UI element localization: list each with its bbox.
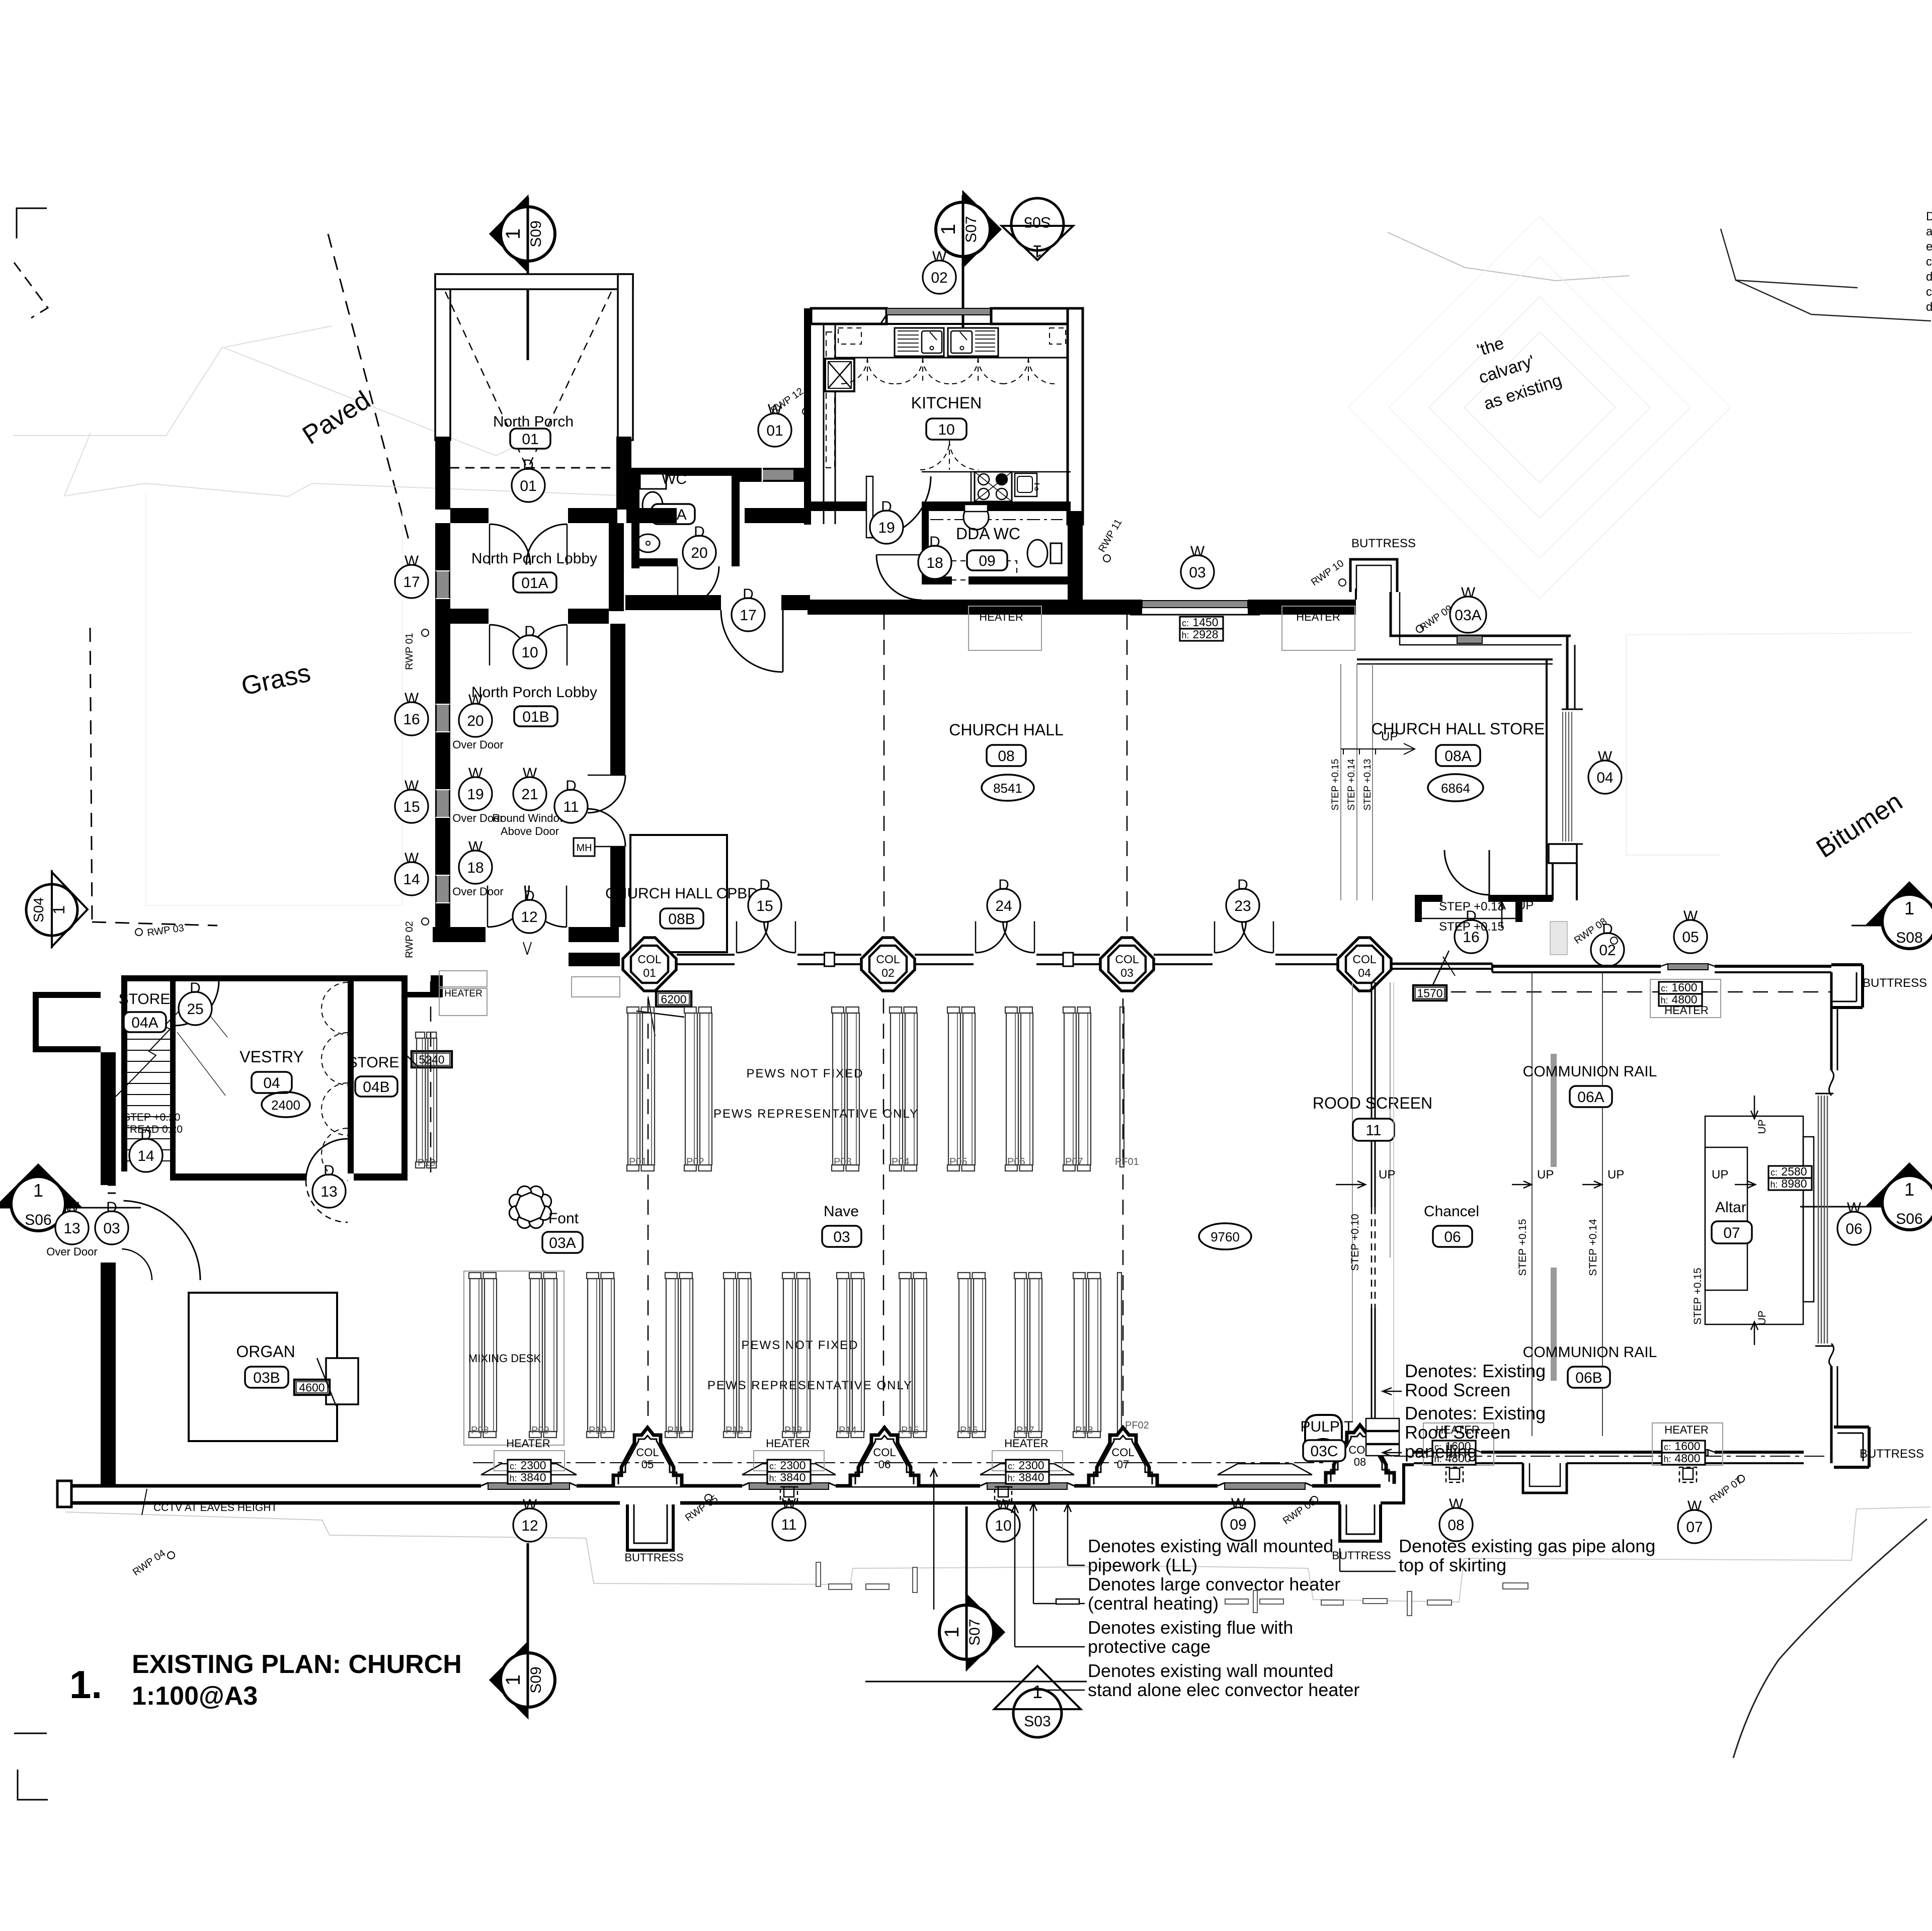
svg-text:04A: 04A xyxy=(131,1015,158,1031)
svg-text:Denotes existing flue with: Denotes existing flue with xyxy=(1088,1617,1293,1638)
svg-text:MIXING DESK: MIXING DESK xyxy=(468,1352,541,1365)
svg-text:D: D xyxy=(324,1162,335,1179)
svg-text:W: W xyxy=(468,692,483,708)
svg-text:1450: 1450 xyxy=(1192,616,1218,629)
svg-text:h:: h: xyxy=(1770,1180,1778,1190)
svg-text:W: W xyxy=(1847,1200,1862,1216)
svg-text:c:: c: xyxy=(1182,618,1189,628)
svg-text:W: W xyxy=(1687,1498,1702,1515)
svg-text:W: W xyxy=(65,1199,79,1216)
svg-text:PEWS NOT FIXED: PEWS NOT FIXED xyxy=(747,1067,864,1080)
svg-text:1: 1 xyxy=(1033,241,1042,261)
svg-text:13: 13 xyxy=(320,1184,337,1200)
svg-text:01: 01 xyxy=(643,966,656,979)
svg-text:Denotes: Existing: Denotes: Existing xyxy=(1405,1361,1546,1381)
svg-text:01B: 01B xyxy=(522,709,549,725)
svg-text:COMMUNION RAIL: COMMUNION RAIL xyxy=(1523,1063,1657,1080)
svg-text:8980: 8980 xyxy=(1781,1177,1807,1190)
svg-text:Over Door: Over Door xyxy=(452,885,503,898)
svg-text:D: D xyxy=(523,457,534,473)
svg-text:P12: P12 xyxy=(726,1425,744,1436)
svg-text:stand alone elec convector hea: stand alone elec convector heater xyxy=(1088,1680,1359,1700)
svg-text:W: W xyxy=(405,553,419,569)
svg-text:P08: P08 xyxy=(471,1425,489,1436)
svg-text:1570: 1570 xyxy=(1417,986,1442,999)
svg-text:top of skirting: top of skirting xyxy=(1399,1555,1506,1575)
svg-text:pipework (LL): pipework (LL) xyxy=(1088,1555,1197,1575)
svg-text:P16: P16 xyxy=(960,1425,978,1436)
svg-text:P18: P18 xyxy=(1075,1425,1093,1436)
svg-text:W: W xyxy=(1461,584,1476,601)
svg-text:W: W xyxy=(405,778,419,794)
svg-text:CCTV AT EAVES HEIGHT: CCTV AT EAVES HEIGHT xyxy=(153,1502,277,1514)
svg-text:06A: 06A xyxy=(1577,1089,1604,1106)
svg-text:4800: 4800 xyxy=(1674,1452,1700,1465)
svg-text:2300: 2300 xyxy=(1018,1459,1044,1472)
svg-text:UP: UP xyxy=(1379,1168,1395,1182)
svg-text:24: 24 xyxy=(995,898,1012,914)
svg-text:04: 04 xyxy=(1358,966,1371,979)
svg-text:P19: P19 xyxy=(418,1157,436,1168)
svg-text:20: 20 xyxy=(691,545,707,561)
svg-text:1: 1 xyxy=(502,228,524,239)
svg-text:3840: 3840 xyxy=(520,1471,546,1484)
svg-text:09: 09 xyxy=(1230,1517,1246,1533)
svg-text:STEP +0.14: STEP +0.14 xyxy=(1587,1219,1599,1276)
svg-text:Denotes: Existing: Denotes: Existing xyxy=(1405,1403,1546,1423)
svg-text:PEWS NOT FIXED: PEWS NOT FIXED xyxy=(742,1338,859,1352)
svg-text:RWP 02: RWP 02 xyxy=(404,921,415,958)
svg-text:c:: c: xyxy=(1770,1167,1778,1178)
svg-text:W: W xyxy=(405,690,419,707)
svg-text:06B: 06B xyxy=(1575,1370,1602,1386)
svg-text:06: 06 xyxy=(878,1458,891,1471)
svg-text:14: 14 xyxy=(403,871,420,888)
svg-text:02: 02 xyxy=(931,270,947,286)
svg-text:COL: COL xyxy=(1352,953,1377,966)
svg-text:W: W xyxy=(782,1495,796,1512)
svg-text:UP: UP xyxy=(1607,1168,1624,1182)
svg-text:S09: S09 xyxy=(528,220,544,247)
svg-text:03: 03 xyxy=(1120,966,1134,979)
svg-text:13: 13 xyxy=(63,1220,80,1237)
svg-text:STEP +0.15: STEP +0.15 xyxy=(1517,1219,1528,1276)
svg-text:05: 05 xyxy=(1682,929,1699,946)
svg-text:3840: 3840 xyxy=(1018,1471,1044,1484)
svg-text:01: 01 xyxy=(522,431,538,448)
svg-text:03A: 03A xyxy=(549,1235,576,1251)
svg-text:MH: MH xyxy=(576,843,592,854)
svg-text:1:100@A3: 1:100@A3 xyxy=(132,1682,258,1711)
svg-text:1.: 1. xyxy=(69,1662,102,1707)
svg-text:P13: P13 xyxy=(784,1425,802,1436)
svg-text:D: D xyxy=(140,1127,151,1143)
svg-text:STORE: STORE xyxy=(348,1054,399,1071)
svg-text:P17: P17 xyxy=(1016,1425,1034,1436)
svg-text:08B: 08B xyxy=(668,911,695,928)
svg-text:10: 10 xyxy=(995,1518,1011,1534)
svg-text:25: 25 xyxy=(187,1001,203,1018)
svg-text:03: 03 xyxy=(103,1220,120,1237)
svg-text:1: 1 xyxy=(1904,898,1914,918)
svg-text:BUTTRESS: BUTTRESS xyxy=(1332,1549,1391,1562)
svg-text:W: W xyxy=(1231,1495,1246,1512)
svg-text:P04: P04 xyxy=(892,1156,910,1167)
svg-text:CHURCH HALL CPBD: CHURCH HALL CPBD xyxy=(605,885,758,902)
svg-text:2580: 2580 xyxy=(1781,1165,1807,1178)
svg-text:17: 17 xyxy=(740,607,756,624)
svg-text:1: 1 xyxy=(502,1674,524,1686)
svg-text:COL: COL xyxy=(637,953,662,966)
svg-text:c:: c: xyxy=(769,1461,776,1471)
svg-text:BUTTRESS: BUTTRESS xyxy=(1351,537,1416,550)
svg-text:COL: COL xyxy=(1115,953,1139,966)
svg-text:h:: h: xyxy=(509,1473,517,1483)
svg-text:Denotes large convector heater: Denotes large convector heater xyxy=(1088,1574,1340,1594)
svg-text:P05: P05 xyxy=(949,1156,968,1167)
svg-text:PF01: PF01 xyxy=(1115,1156,1139,1167)
svg-text:P03: P03 xyxy=(834,1156,852,1167)
svg-text:Rood Screen: Rood Screen xyxy=(1405,1380,1510,1400)
svg-text:HEATER: HEATER xyxy=(444,988,482,999)
svg-text:18: 18 xyxy=(467,860,484,876)
svg-text:02: 02 xyxy=(1599,942,1616,959)
svg-text:20: 20 xyxy=(467,713,484,729)
svg-text:c: c xyxy=(1926,255,1932,269)
svg-text:STEP +0.14: STEP +0.14 xyxy=(1346,759,1357,810)
svg-text:KITCHEN: KITCHEN xyxy=(911,394,982,412)
svg-text:D: D xyxy=(524,623,535,640)
svg-text:d: d xyxy=(1926,270,1932,284)
svg-text:STEP +0.10: STEP +0.10 xyxy=(1349,1214,1361,1271)
svg-text:07: 07 xyxy=(1117,1458,1129,1471)
svg-text:VESTRY: VESTRY xyxy=(239,1048,303,1066)
svg-text:COL: COL xyxy=(873,1446,896,1459)
svg-text:1: 1 xyxy=(941,1627,963,1638)
svg-text:STEP +0.13: STEP +0.13 xyxy=(1439,900,1504,913)
svg-text:1600: 1600 xyxy=(1674,1440,1700,1453)
svg-text:6864: 6864 xyxy=(1441,781,1470,796)
svg-text:STEP +0.13: STEP +0.13 xyxy=(1362,759,1373,811)
svg-text:2300: 2300 xyxy=(780,1459,806,1472)
svg-text:D: D xyxy=(524,888,535,904)
svg-text:03B: 03B xyxy=(253,1370,280,1386)
svg-text:P10: P10 xyxy=(589,1425,607,1436)
svg-text:a: a xyxy=(1926,225,1932,238)
svg-text:c:: c: xyxy=(1661,983,1668,993)
svg-text:14: 14 xyxy=(137,1148,154,1164)
svg-text:BUTTRESS: BUTTRESS xyxy=(1860,1447,1924,1461)
svg-text:01: 01 xyxy=(520,478,536,494)
svg-text:1: 1 xyxy=(1032,1682,1042,1702)
svg-text:Over Door: Over Door xyxy=(452,738,503,751)
svg-text:protective cage: protective cage xyxy=(1088,1636,1211,1657)
svg-text:HEATER: HEATER xyxy=(979,611,1023,623)
svg-text:15: 15 xyxy=(403,799,420,815)
svg-text:4600: 4600 xyxy=(299,1381,325,1394)
svg-text:S06: S06 xyxy=(25,1212,51,1228)
svg-text:STEP +0.15: STEP +0.15 xyxy=(1330,759,1341,811)
svg-text:P07: P07 xyxy=(1065,1156,1083,1167)
svg-text:1: 1 xyxy=(937,224,959,235)
svg-text:17: 17 xyxy=(403,574,420,591)
svg-text:c:: c: xyxy=(1664,1442,1671,1452)
svg-text:HEATER: HEATER xyxy=(1664,1423,1709,1436)
svg-text:STORE: STORE xyxy=(119,991,171,1008)
svg-text:10: 10 xyxy=(521,644,538,661)
svg-text:d: d xyxy=(1926,300,1932,314)
svg-text:UP: UP xyxy=(1756,1119,1768,1134)
svg-text:ROOD SCREEN: ROOD SCREEN xyxy=(1313,1094,1432,1112)
svg-text:UP: UP xyxy=(1537,1168,1554,1182)
svg-text:21: 21 xyxy=(521,786,538,803)
svg-text:09: 09 xyxy=(979,553,995,569)
svg-text:11: 11 xyxy=(781,1517,796,1533)
svg-text:P01: P01 xyxy=(629,1156,647,1167)
svg-text:HEATER: HEATER xyxy=(1664,1004,1709,1017)
svg-text:Denotes existing wall mounted: Denotes existing wall mounted xyxy=(1088,1536,1333,1556)
svg-text:Altar: Altar xyxy=(1715,1199,1746,1216)
svg-text:UP: UP xyxy=(1712,1168,1728,1182)
svg-text:CHURCH HALL STORE: CHURCH HALL STORE xyxy=(1372,720,1545,738)
svg-text:11: 11 xyxy=(1365,1122,1381,1139)
svg-text:Denotes existing gas pipe alon: Denotes existing gas pipe along xyxy=(1399,1536,1655,1556)
svg-text:BUTTRESS: BUTTRESS xyxy=(624,1551,683,1564)
svg-text:01: 01 xyxy=(766,423,783,439)
svg-text:S09: S09 xyxy=(528,1666,544,1693)
svg-text:h:: h: xyxy=(1663,1454,1671,1464)
svg-text:HEATER: HEATER xyxy=(1296,611,1340,623)
svg-text:05: 05 xyxy=(641,1458,654,1471)
svg-text:06: 06 xyxy=(1845,1221,1862,1237)
svg-text:3840: 3840 xyxy=(780,1471,806,1484)
svg-text:c: c xyxy=(1926,285,1932,299)
svg-text:P06: P06 xyxy=(1007,1156,1025,1167)
svg-text:D: D xyxy=(929,534,940,550)
svg-text:19: 19 xyxy=(878,520,895,536)
svg-text:e: e xyxy=(1926,240,1932,254)
svg-text:W: W xyxy=(468,838,483,855)
svg-text:STEP +0.15: STEP +0.15 xyxy=(1439,920,1504,934)
svg-text:HEATER: HEATER xyxy=(766,1437,810,1450)
svg-text:panelling: panelling xyxy=(1405,1441,1477,1462)
svg-text:COL: COL xyxy=(1111,1446,1134,1459)
svg-text:Rood Screen: Rood Screen xyxy=(1405,1422,1510,1443)
svg-text:DDA WC: DDA WC xyxy=(956,525,1020,543)
svg-text:08: 08 xyxy=(998,748,1014,765)
svg-text:h:: h: xyxy=(769,1473,776,1483)
svg-text:S07: S07 xyxy=(967,1619,983,1645)
svg-text:19: 19 xyxy=(467,786,484,803)
svg-text:1: 1 xyxy=(1904,1179,1914,1200)
svg-text:W: W xyxy=(1449,1496,1464,1513)
svg-text:2400: 2400 xyxy=(271,1098,300,1113)
svg-text:PF02: PF02 xyxy=(1125,1420,1149,1431)
svg-text:07: 07 xyxy=(1686,1519,1703,1536)
svg-text:06: 06 xyxy=(1444,1229,1461,1245)
svg-text:2300: 2300 xyxy=(520,1459,546,1472)
svg-text:COL: COL xyxy=(636,1446,659,1459)
svg-text:1: 1 xyxy=(33,1180,43,1201)
svg-text:S03: S03 xyxy=(1024,1713,1051,1730)
svg-text:W: W xyxy=(1190,543,1205,560)
svg-text:D: D xyxy=(743,586,754,603)
svg-text:HEATER: HEATER xyxy=(506,1437,550,1450)
svg-text:W: W xyxy=(523,765,537,782)
svg-text:(central heating): (central heating) xyxy=(1088,1593,1219,1614)
svg-text:D: D xyxy=(566,778,577,794)
svg-text:02: 02 xyxy=(881,966,895,979)
svg-text:11: 11 xyxy=(563,799,579,815)
svg-text:W: W xyxy=(996,1496,1011,1513)
svg-text:W: W xyxy=(405,850,419,867)
svg-text:BUTTRESS: BUTTRESS xyxy=(1863,976,1927,990)
svg-text:North Porch Lobby: North Porch Lobby xyxy=(471,684,597,701)
svg-text:h:: h: xyxy=(1007,1473,1015,1483)
svg-text:D: D xyxy=(190,980,201,996)
svg-text:9760: 9760 xyxy=(1211,1229,1240,1244)
svg-text:Font: Font xyxy=(548,1210,579,1227)
svg-text:P15: P15 xyxy=(901,1425,919,1436)
svg-text:P11: P11 xyxy=(667,1425,684,1436)
svg-text:S06: S06 xyxy=(1896,1211,1922,1227)
svg-text:W: W xyxy=(932,248,947,265)
svg-text:PULPIT: PULPIT xyxy=(1300,1418,1353,1435)
svg-text:01A: 01A xyxy=(521,575,548,592)
svg-text:CHURCH HALL: CHURCH HALL xyxy=(949,721,1064,739)
svg-text:15: 15 xyxy=(756,898,773,914)
svg-text:12: 12 xyxy=(521,909,537,926)
svg-text:03C: 03C xyxy=(1310,1443,1338,1460)
svg-text:P02: P02 xyxy=(686,1156,704,1167)
svg-text:D: D xyxy=(1926,210,1932,223)
svg-text:Denotes existing wall mounted: Denotes existing wall mounted xyxy=(1088,1660,1333,1681)
svg-text:S08: S08 xyxy=(1896,930,1922,946)
svg-text:D: D xyxy=(1237,877,1248,893)
svg-text:2928: 2928 xyxy=(1192,628,1218,641)
svg-text:c:: c: xyxy=(510,1461,517,1471)
svg-text:PEWS REPRESENTATIVE ONLY: PEWS REPRESENTATIVE ONLY xyxy=(713,1107,919,1121)
svg-text:23: 23 xyxy=(1234,898,1251,914)
svg-text:ORGAN: ORGAN xyxy=(236,1342,295,1361)
svg-text:03: 03 xyxy=(833,1229,850,1245)
svg-text:D: D xyxy=(759,877,770,893)
svg-text:COMMUNION RAIL: COMMUNION RAIL xyxy=(1523,1344,1657,1361)
svg-text:P09: P09 xyxy=(531,1425,549,1436)
svg-text:S04: S04 xyxy=(31,897,46,922)
svg-text:Nave: Nave xyxy=(824,1203,859,1220)
svg-text:COL: COL xyxy=(876,953,900,966)
svg-text:16: 16 xyxy=(403,711,420,728)
svg-text:6200: 6200 xyxy=(661,992,686,1005)
svg-text:08A: 08A xyxy=(1444,748,1471,765)
svg-text:D: D xyxy=(106,1199,117,1216)
svg-text:04B: 04B xyxy=(363,1079,389,1096)
svg-text:c:: c: xyxy=(1008,1461,1015,1471)
svg-text:h:: h: xyxy=(1181,630,1189,640)
svg-text:18: 18 xyxy=(926,555,943,571)
svg-text:10: 10 xyxy=(938,422,954,438)
svg-text:W: W xyxy=(523,1496,537,1513)
svg-text:EXISTING PLAN: CHURCH: EXISTING PLAN: CHURCH xyxy=(132,1650,462,1679)
svg-text:1600: 1600 xyxy=(1671,981,1697,994)
svg-text:W: W xyxy=(1598,748,1613,765)
svg-text:W: W xyxy=(1683,908,1698,925)
svg-text:08: 08 xyxy=(1354,1456,1366,1468)
svg-text:04: 04 xyxy=(1596,770,1613,786)
svg-text:03: 03 xyxy=(1189,564,1205,581)
svg-text:07: 07 xyxy=(1723,1225,1740,1241)
svg-text:Above Door: Above Door xyxy=(501,825,559,837)
svg-text:8541: 8541 xyxy=(993,781,1022,796)
svg-text:03A: 03A xyxy=(1455,607,1481,624)
svg-text:RWP 01: RWP 01 xyxy=(404,633,415,670)
svg-text:P14: P14 xyxy=(839,1425,857,1436)
svg-text:Over Door: Over Door xyxy=(46,1245,97,1258)
svg-text:STEP +0.15: STEP +0.15 xyxy=(1692,1268,1704,1324)
svg-text:D: D xyxy=(881,498,892,515)
svg-text:Chancel: Chancel xyxy=(1424,1203,1479,1220)
svg-text:S05: S05 xyxy=(1024,214,1051,230)
svg-text:S07: S07 xyxy=(963,216,980,242)
svg-text:12: 12 xyxy=(521,1518,538,1534)
svg-text:HEATER: HEATER xyxy=(1004,1437,1049,1450)
svg-text:04: 04 xyxy=(263,1075,280,1092)
svg-text:1: 1 xyxy=(50,905,68,914)
svg-text:North Porch Lobby: North Porch Lobby xyxy=(471,550,597,567)
svg-text:08: 08 xyxy=(1447,1517,1464,1534)
svg-text:W: W xyxy=(468,765,483,782)
svg-text:North Porch: North Porch xyxy=(493,413,574,430)
svg-text:WC: WC xyxy=(662,471,687,487)
svg-text:D: D xyxy=(694,524,705,540)
svg-text:D: D xyxy=(998,877,1009,893)
svg-text:UP: UP xyxy=(1756,1310,1768,1325)
